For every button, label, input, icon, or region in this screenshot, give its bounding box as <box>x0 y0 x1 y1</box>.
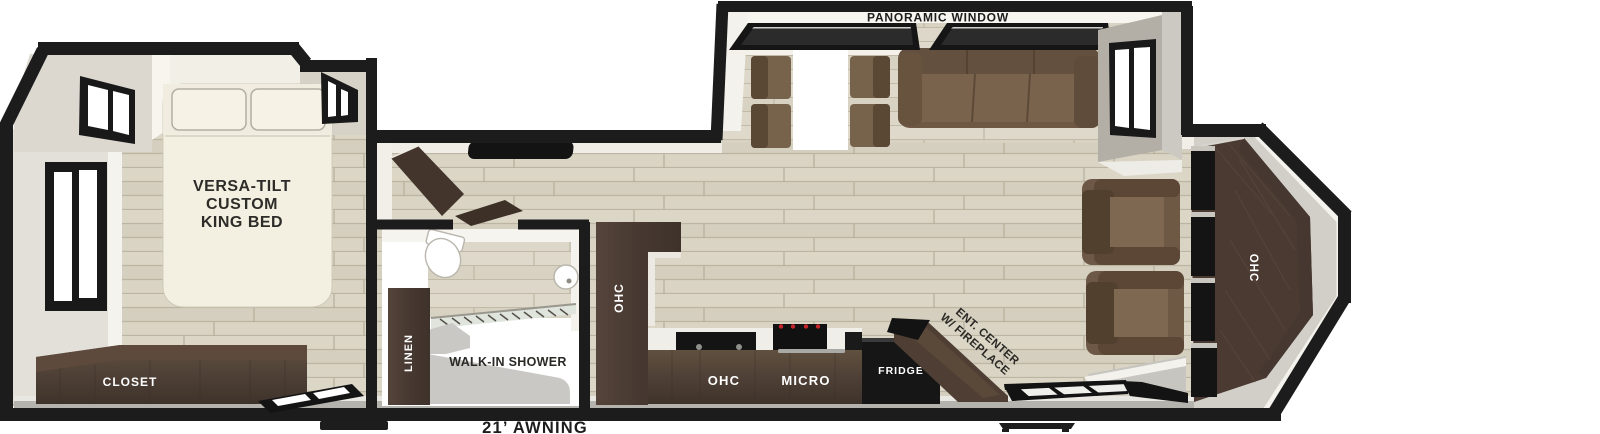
svg-text:WALK-IN SHOWER: WALK-IN SHOWER <box>449 355 566 369</box>
svg-text:21’ AWNING: 21’ AWNING <box>482 419 588 434</box>
svg-text:VERSA-TILT: VERSA-TILT <box>193 178 291 195</box>
svg-text:LINEN: LINEN <box>403 334 415 372</box>
svg-text:OHC: OHC <box>708 373 741 388</box>
svg-text:MICRO: MICRO <box>781 373 830 388</box>
svg-text:OHC: OHC <box>612 283 626 313</box>
svg-text:KING BED: KING BED <box>201 214 283 231</box>
svg-text:OHC: OHC <box>1247 254 1259 283</box>
svg-text:FRIDGE: FRIDGE <box>878 365 924 377</box>
svg-text:PANORAMIC WINDOW: PANORAMIC WINDOW <box>867 11 1009 25</box>
svg-text:CUSTOM: CUSTOM <box>206 196 278 213</box>
svg-text:CLOSET: CLOSET <box>103 375 158 389</box>
